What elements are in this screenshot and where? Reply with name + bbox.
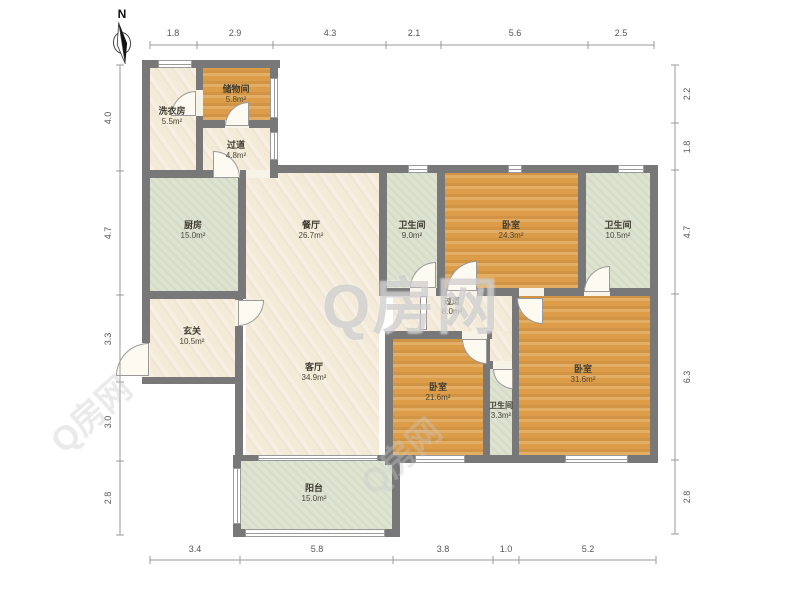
- dim-left-4: 3.0: [103, 416, 113, 429]
- room-area: 26.7m²: [299, 231, 324, 241]
- room-label-laundry: 洗衣房 5.5m²: [158, 106, 185, 127]
- dim-top-1: 1.8: [167, 28, 180, 38]
- room-name: 洗衣房: [158, 106, 185, 117]
- room-label-bedroom-3: 卧室 31.6m²: [571, 364, 596, 385]
- dim-top-3: 4.3: [324, 28, 337, 38]
- room-label-bath-1: 卫生间 9.0m²: [398, 220, 425, 241]
- room-label-bedroom-1: 卧室 24.3m²: [499, 220, 524, 241]
- dim-left-2: 4.7: [103, 227, 113, 240]
- room-label-entry: 玄关 10.5m²: [180, 326, 205, 347]
- dim-right-5: 2.8: [682, 491, 692, 504]
- room-area: 21.6m²: [426, 393, 451, 403]
- room-area: 24.3m²: [499, 231, 524, 241]
- room-name: 阳台: [302, 483, 327, 494]
- room-name: 过道: [442, 296, 462, 307]
- room-label-hallway-1: 过道 4.8m²: [226, 140, 246, 161]
- dim-top-2: 2.9: [229, 28, 242, 38]
- room-label-dining: 餐厅 26.7m²: [299, 220, 324, 241]
- room-area: 8.0m²: [442, 307, 462, 317]
- dim-bottom-4: 1.0: [500, 544, 513, 554]
- room-area: 5.8m²: [222, 95, 249, 105]
- room-name: 卫生间: [489, 400, 513, 411]
- dimension-lines: [0, 0, 800, 600]
- dim-bottom-1: 3.4: [189, 544, 202, 554]
- room-label-living: 客厅 34.9m²: [302, 362, 327, 383]
- room-area: 34.9m²: [302, 373, 327, 383]
- room-name: 卫生间: [604, 220, 631, 231]
- room-name: 厨房: [181, 220, 206, 231]
- room-name: 卫生间: [398, 220, 425, 231]
- floorplan-canvas: N 1.8 2.9 4.3 2.1 5.6 2.5 3.4 5.8 3.8 1.…: [0, 0, 800, 600]
- dim-bottom-2: 5.8: [311, 544, 324, 554]
- room-area: 5.5m²: [158, 117, 185, 127]
- room-area: 4.8m²: [226, 151, 246, 161]
- room-label-kitchen: 厨房 15.0m²: [181, 220, 206, 241]
- room-label-bedroom-2: 卧室 21.6m²: [426, 382, 451, 403]
- dim-right-1: 2.2: [682, 88, 692, 101]
- room-label-storage: 储物间 5.8m²: [222, 84, 249, 105]
- room-name: 玄关: [180, 326, 205, 337]
- room-area: 15.0m²: [181, 231, 206, 241]
- dim-top-4: 2.1: [408, 28, 421, 38]
- room-name: 餐厅: [299, 220, 324, 231]
- dim-top-6: 2.5: [615, 28, 628, 38]
- dim-left-1: 4.0: [103, 112, 113, 125]
- room-area: 10.5m²: [604, 231, 631, 241]
- room-name: 过道: [226, 140, 246, 151]
- room-label-bath-2: 卫生间 10.5m²: [604, 220, 631, 241]
- dim-bottom-3: 3.8: [437, 544, 450, 554]
- room-name: 客厅: [302, 362, 327, 373]
- dim-right-2: 1.8: [682, 141, 692, 154]
- room-area: 10.5m²: [180, 337, 205, 347]
- room-area: 3.3m²: [489, 411, 513, 421]
- room-name: 储物间: [222, 84, 249, 95]
- dim-right-3: 4.7: [682, 226, 692, 239]
- room-label-bath-3: 卫生间 3.3m²: [489, 400, 513, 421]
- room-area: 31.6m²: [571, 375, 596, 385]
- dim-left-5: 2.8: [103, 492, 113, 505]
- dim-right-4: 6.3: [682, 371, 692, 384]
- dim-top-5: 5.6: [509, 28, 522, 38]
- dim-left-3: 3.3: [103, 333, 113, 346]
- room-label-balcony: 阳台 15.0m²: [302, 483, 327, 504]
- room-label-hallway-2: 过道 8.0m²: [442, 296, 462, 317]
- room-area: 15.0m²: [302, 494, 327, 504]
- north-label: N: [104, 8, 140, 20]
- room-name: 卧室: [571, 364, 596, 375]
- compass-needle-icon: [106, 20, 138, 66]
- room-name: 卧室: [426, 382, 451, 393]
- room-area: 9.0m²: [398, 231, 425, 241]
- room-name: 卧室: [499, 220, 524, 231]
- north-indicator: N: [104, 8, 140, 70]
- dim-bottom-5: 5.2: [582, 544, 595, 554]
